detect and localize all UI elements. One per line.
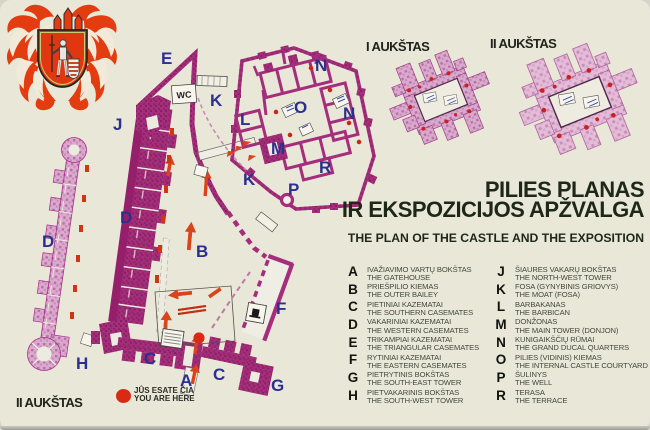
svg-text:WC: WC — [176, 89, 192, 100]
